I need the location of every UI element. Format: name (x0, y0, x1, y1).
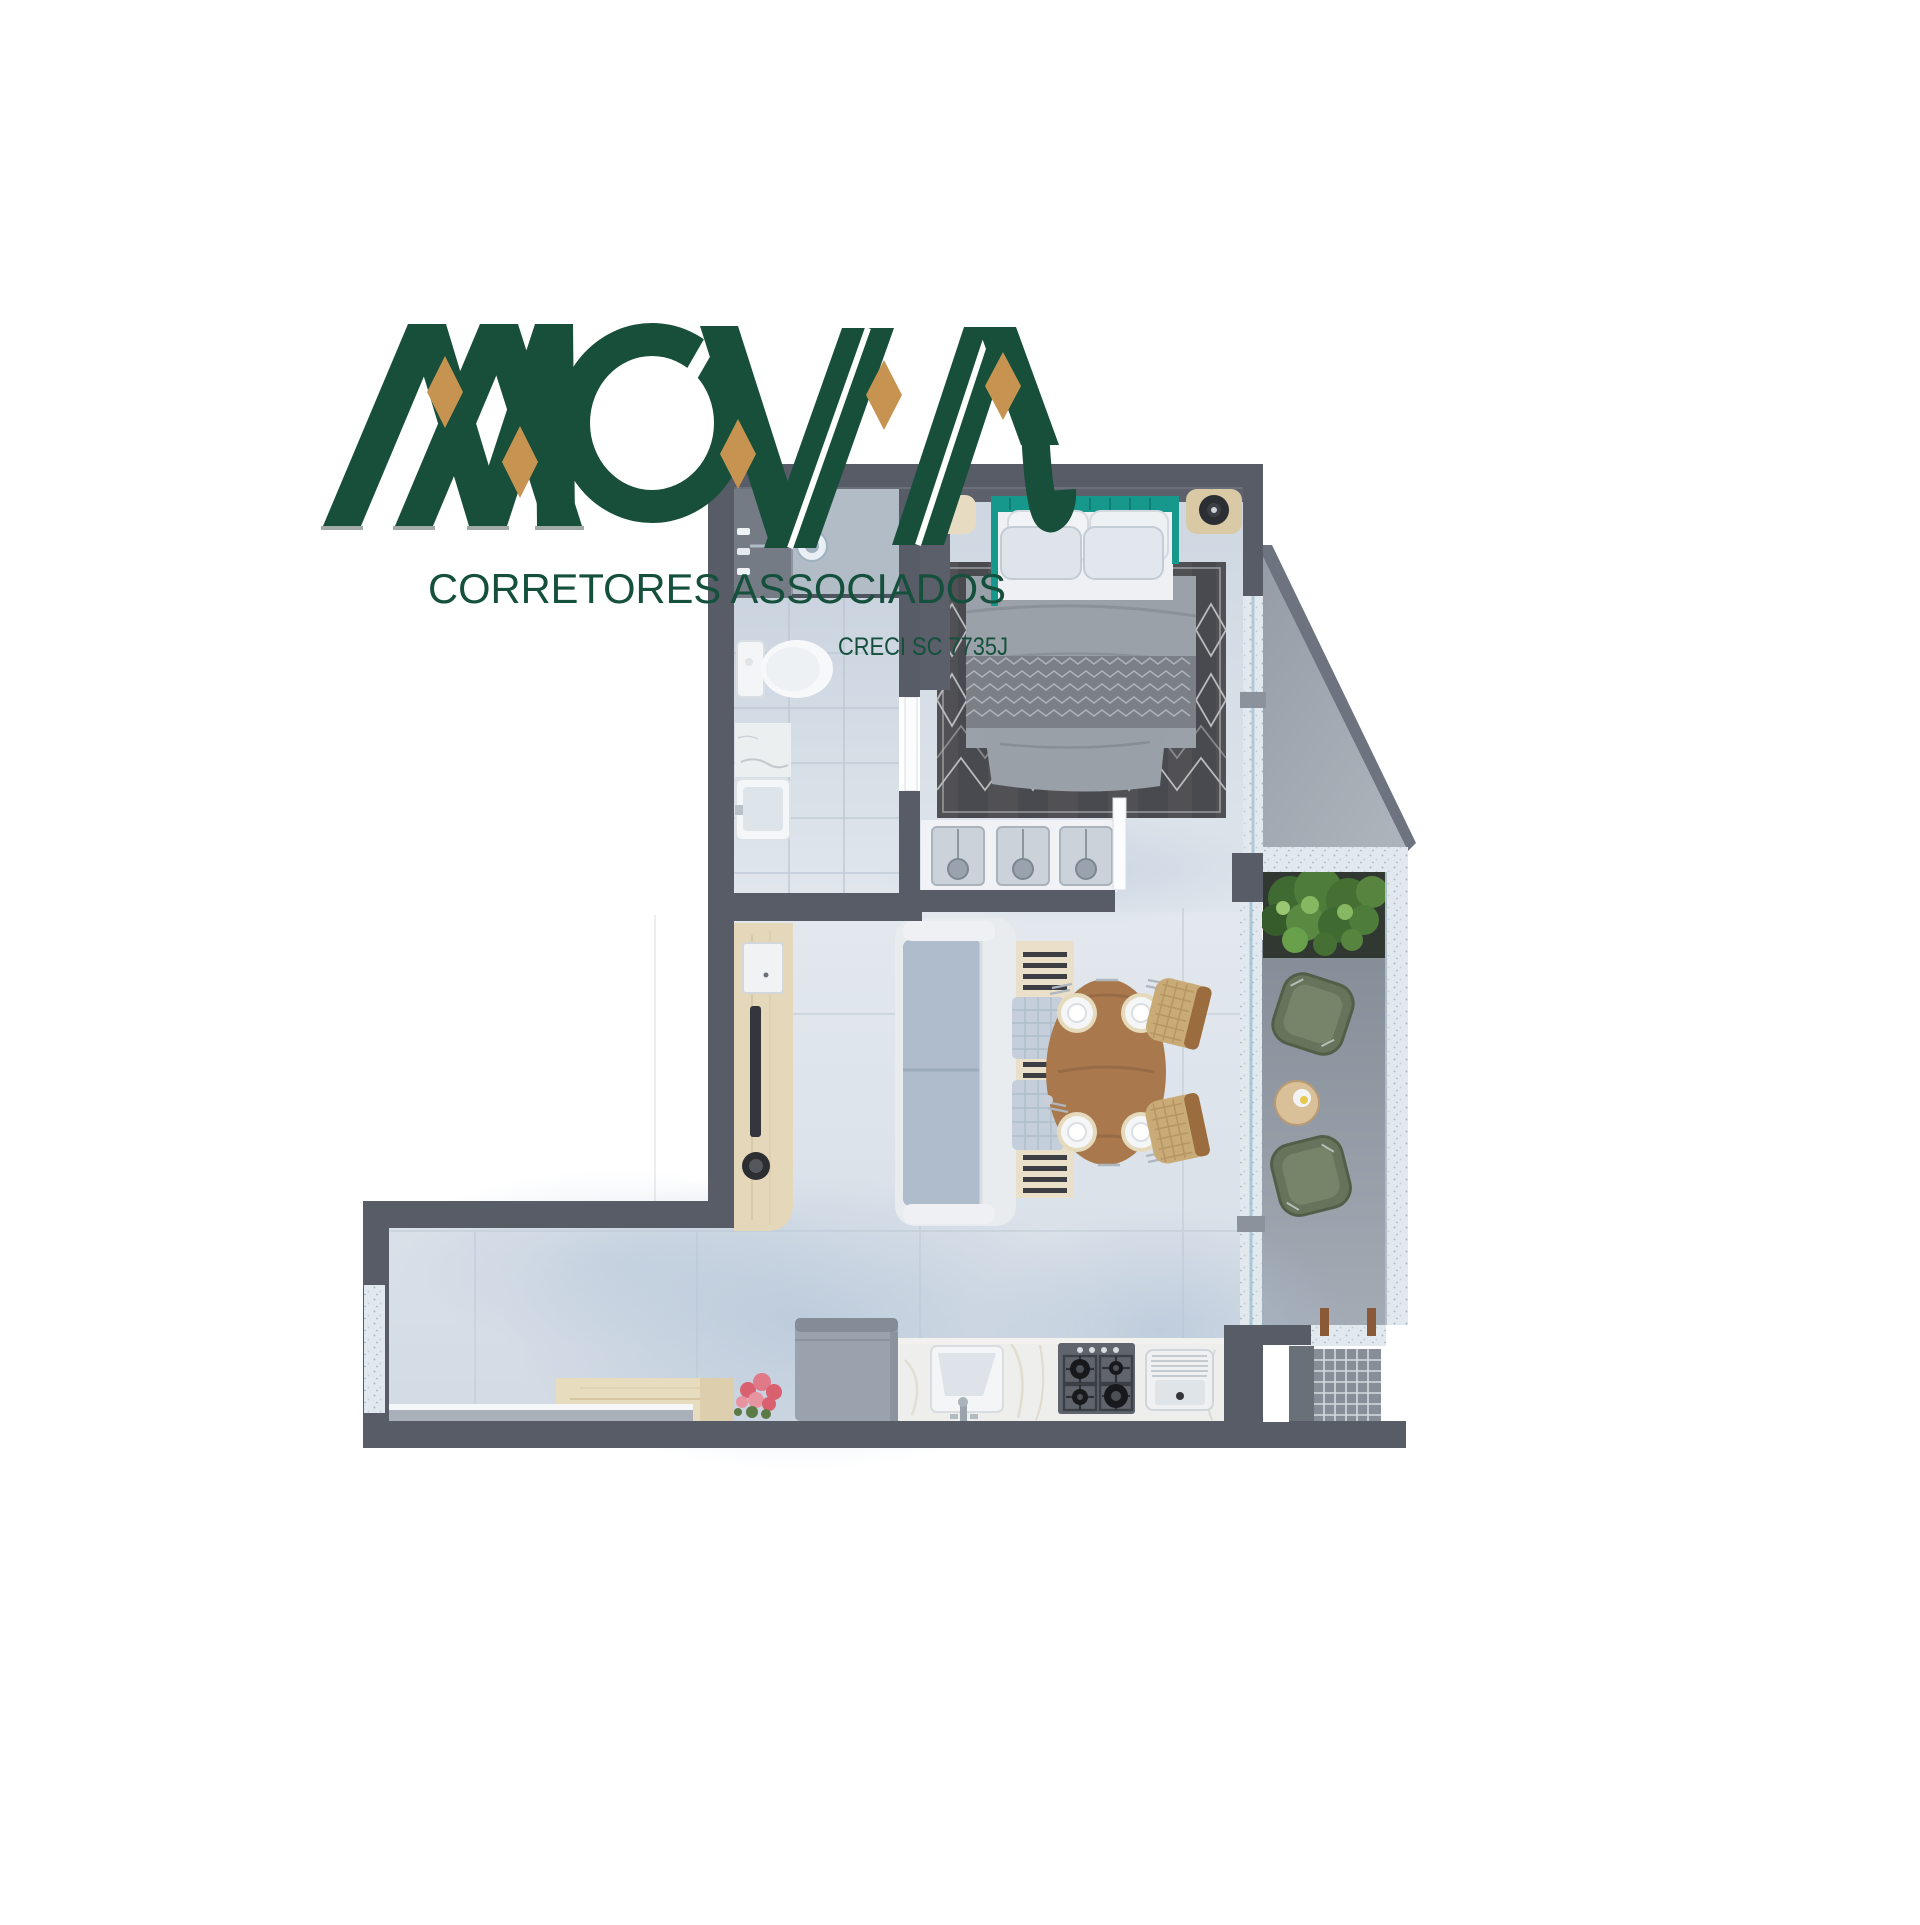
svg-text:CORRETORES ASSOCIADOS: CORRETORES ASSOCIADOS (428, 565, 1006, 612)
svg-text:CRECI SC 7735J: CRECI SC 7735J (838, 633, 1008, 661)
